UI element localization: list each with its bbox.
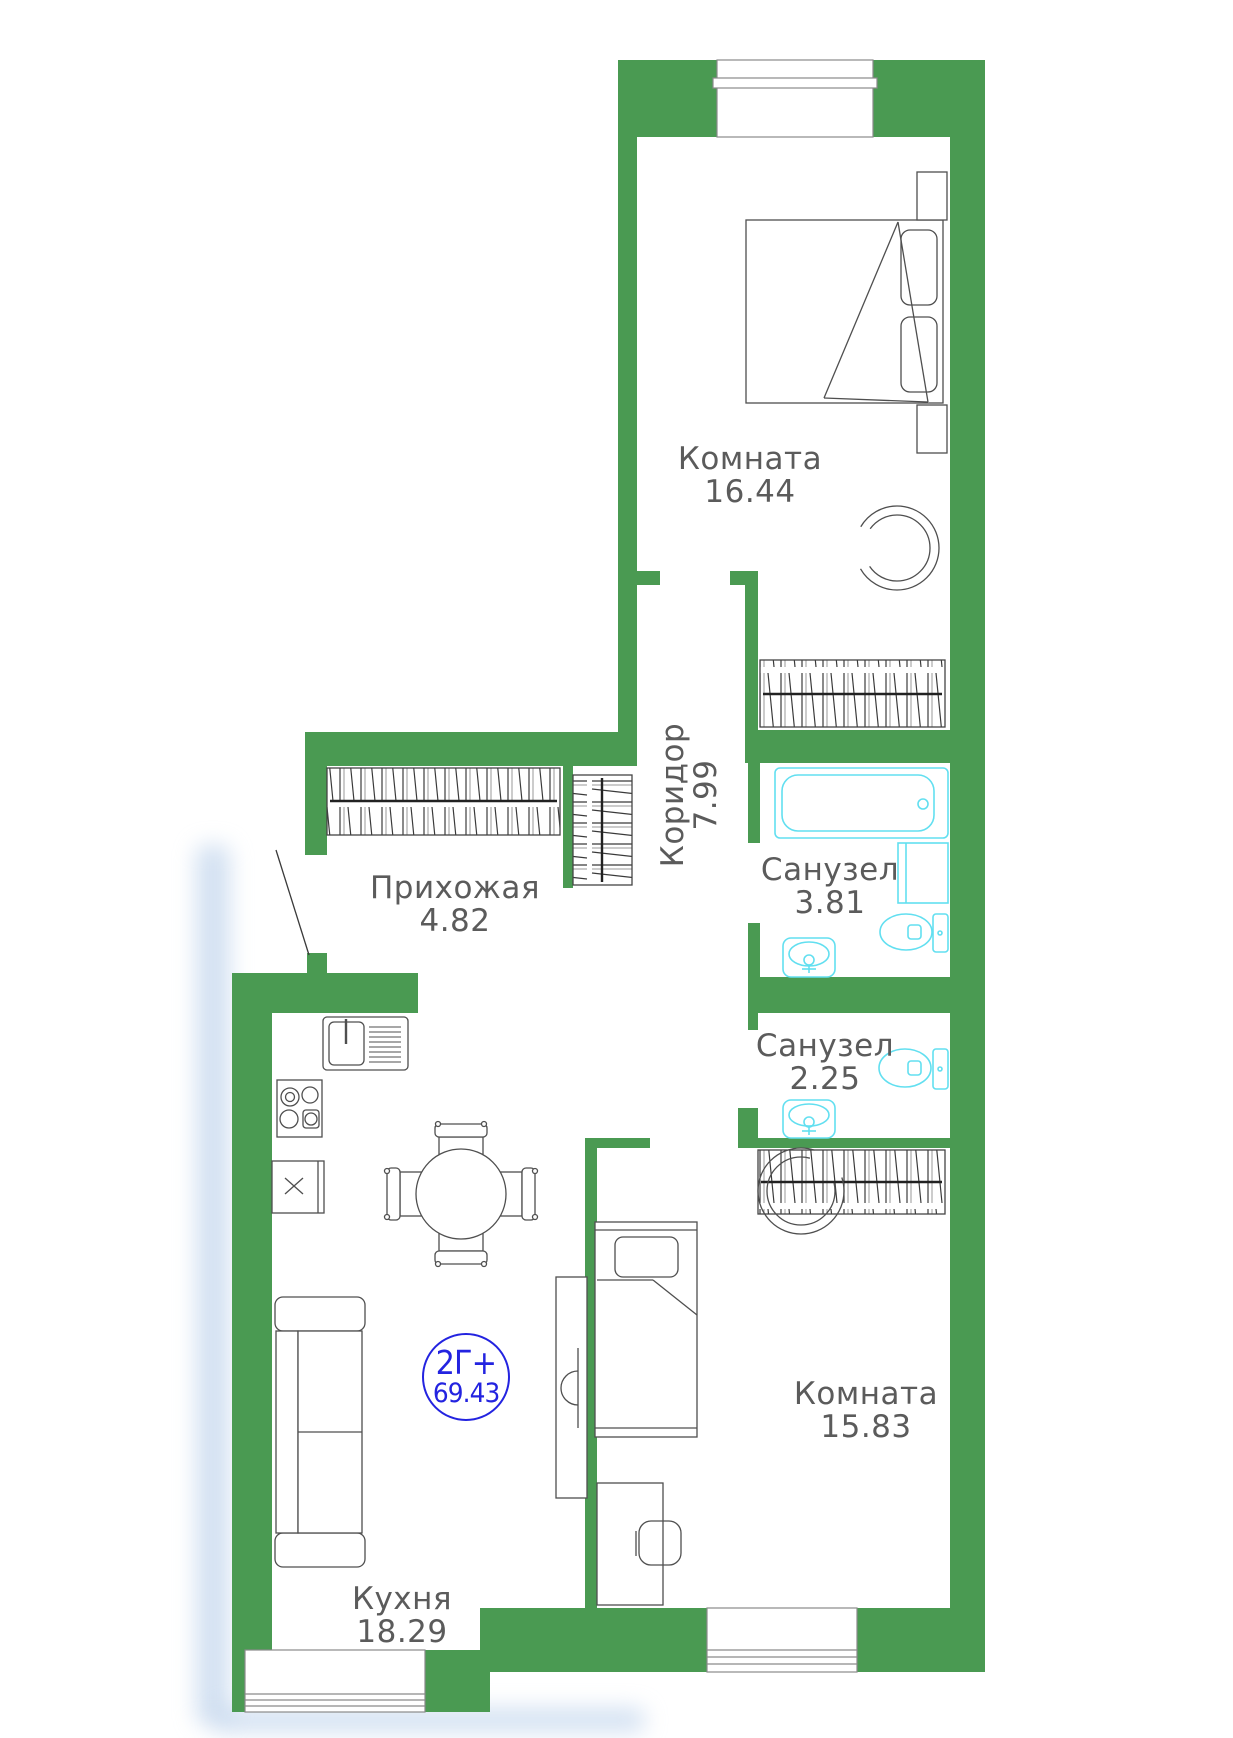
floor-plan: Комната 16.44 Коридор 7.99 Прихожая 4.82… <box>0 0 1233 1738</box>
apartment-type: 2Г+ <box>436 1346 497 1379</box>
room-name: Санузел <box>761 854 899 887</box>
room-label-corridor: Коридор 7.99 <box>657 723 723 867</box>
sink-icon-bath1 <box>783 938 835 977</box>
room-label-bathroom1: Санузел 3.81 <box>761 854 899 920</box>
apartment-type-badge: 2Г+ 69.43 <box>422 1333 510 1421</box>
sink-icon-bath2 <box>783 1100 835 1138</box>
room-label-hallway: Прихожая 4.82 <box>370 872 540 938</box>
room-area: 7.99 <box>690 723 723 867</box>
room-name: Комната <box>678 443 822 476</box>
washing-machine-icon <box>898 843 948 903</box>
window-top <box>713 60 877 137</box>
fridge-cabinet-icon <box>272 1161 324 1213</box>
stove-icon <box>277 1080 322 1137</box>
room-area: 16.44 <box>678 476 822 509</box>
bathtub-icon <box>775 768 948 838</box>
desk-room15 <box>597 1483 681 1605</box>
room-name: Кухня <box>352 1583 452 1616</box>
dining-set <box>385 1122 538 1267</box>
sofa-icon <box>275 1297 365 1567</box>
wardrobe-hallway-horizontal <box>327 768 560 835</box>
room-area: 2.25 <box>756 1063 894 1096</box>
room-name: Прихожая <box>370 872 540 905</box>
double-bed-drawing <box>746 172 947 453</box>
floor-plan-svg <box>0 0 1233 1738</box>
room-label-bathroom2: Санузел 2.25 <box>756 1030 894 1096</box>
room-area: 4.82 <box>370 905 540 938</box>
kitchen-desk-chair <box>556 1277 587 1498</box>
kitchen-sink-counter <box>323 1017 408 1070</box>
room-area: 18.29 <box>352 1616 452 1649</box>
wardrobe-hallway-vertical <box>573 775 632 885</box>
single-bed-icon <box>595 1222 697 1437</box>
room-name: Коридор <box>657 723 690 867</box>
apartment-total-area: 69.43 <box>433 1379 500 1409</box>
armchair-icon-top-room <box>855 506 939 590</box>
room-area: 15.83 <box>794 1411 938 1444</box>
room-label-kitchen: Кухня 18.29 <box>352 1583 452 1649</box>
room-name: Комната <box>794 1378 938 1411</box>
wardrobe-room15 <box>758 1150 945 1214</box>
window-bottom-left <box>245 1650 425 1712</box>
window-bottom-center <box>707 1608 857 1672</box>
room-label-bedroom-bottom: Комната 15.83 <box>794 1378 938 1444</box>
entrance-door-swing <box>276 850 309 955</box>
room-label-bedroom-top: Комната 16.44 <box>678 443 822 509</box>
room-area: 3.81 <box>761 887 899 920</box>
room-name: Санузел <box>756 1030 894 1063</box>
wardrobe-top-room <box>760 660 945 727</box>
